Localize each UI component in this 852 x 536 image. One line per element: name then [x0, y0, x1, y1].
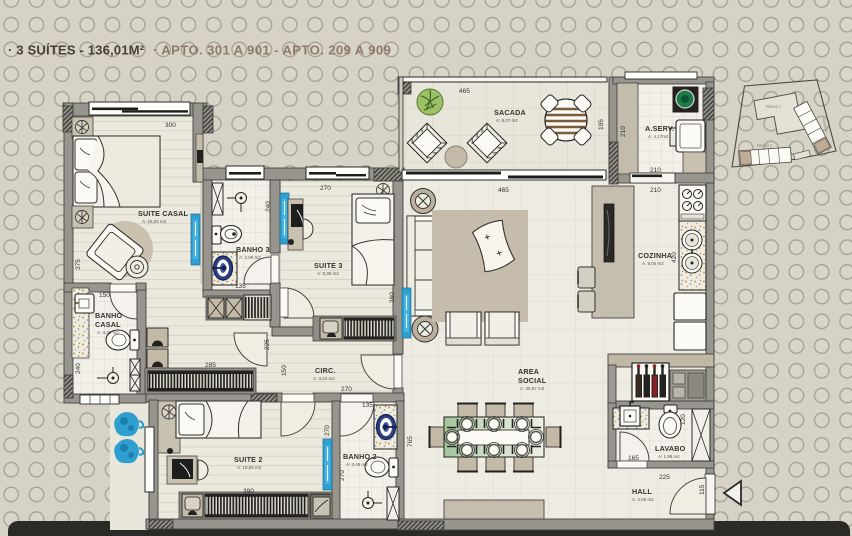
svg-text:SACADA: SACADA	[494, 108, 526, 117]
svg-text:HALL: HALL	[632, 487, 652, 496]
svg-text:PREDIO 3: PREDIO 3	[766, 105, 781, 109]
svg-text:270: 270	[339, 470, 346, 481]
svg-text:135: 135	[235, 283, 246, 290]
svg-text:A: 8,07 m2: A: 8,07 m2	[496, 118, 518, 123]
svg-text:SOCIAL: SOCIAL	[518, 376, 547, 385]
svg-text:BANHO 3: BANHO 3	[236, 245, 270, 254]
svg-text:225: 225	[659, 474, 670, 481]
svg-text:A: 9,05 m2: A: 9,05 m2	[642, 261, 664, 266]
svg-text:210: 210	[650, 167, 661, 174]
svg-text:AREA: AREA	[518, 367, 539, 376]
svg-text:465: 465	[498, 187, 509, 194]
svg-text:150: 150	[99, 292, 110, 299]
svg-text:A: 4,17m2: A: 4,17m2	[648, 134, 669, 139]
svg-text:240: 240	[75, 363, 82, 374]
svg-text:285: 285	[205, 362, 216, 369]
svg-text:A.SERV.: A.SERV.	[645, 124, 674, 133]
svg-text:SUITE 3: SUITE 3	[314, 261, 343, 270]
svg-text:A: 3,36 m2: A: 3,36 m2	[97, 330, 119, 335]
svg-text:115: 115	[699, 484, 706, 495]
svg-text:465: 465	[459, 88, 470, 95]
svg-text:BANHO: BANHO	[95, 311, 123, 320]
svg-text:150: 150	[281, 365, 288, 376]
svg-text:A: 3,00 m2: A: 3,00 m2	[239, 255, 261, 260]
svg-text:390: 390	[243, 488, 254, 495]
svg-text:A: 10,50 m2: A: 10,50 m2	[237, 465, 262, 470]
svg-text:· APTO. 301 A 901 - APTO. 209: · APTO. 301 A 901 - APTO. 209 A 909	[153, 43, 391, 58]
svg-text:BANHO 2: BANHO 2	[343, 452, 377, 461]
svg-text:SUITE 2: SUITE 2	[234, 455, 263, 464]
svg-text:CIRC.: CIRC.	[315, 366, 336, 375]
svg-text:A: 9,35 m2: A: 9,35 m2	[317, 271, 339, 276]
svg-text:210: 210	[620, 126, 627, 137]
svg-text:165: 165	[628, 455, 639, 462]
svg-text:240: 240	[265, 201, 272, 212]
svg-text:CASAL: CASAL	[95, 320, 121, 329]
svg-text:270: 270	[320, 185, 331, 192]
svg-text:210: 210	[650, 187, 661, 194]
svg-text:SUITE CASAL: SUITE CASAL	[138, 209, 189, 218]
svg-text:A: 2,59 m2: A: 2,59 m2	[632, 497, 654, 502]
svg-text:· 3 SUÍTES - 136,01M²: · 3 SUÍTES - 136,01M²	[8, 43, 145, 58]
svg-text:LAVABO: LAVABO	[655, 444, 686, 453]
svg-text:765: 765	[407, 436, 414, 447]
svg-text:135: 135	[362, 402, 373, 409]
svg-text:A: 3,45 m2: A: 3,45 m2	[346, 462, 368, 467]
svg-text:A: 1,98 m2: A: 1,98 m2	[658, 454, 680, 459]
svg-text:120: 120	[680, 414, 687, 425]
svg-text:COZINHA: COZINHA	[638, 251, 672, 260]
svg-text:420: 420	[671, 252, 678, 263]
svg-text:195: 195	[598, 119, 605, 130]
svg-text:225: 225	[264, 339, 271, 350]
svg-text:A: 16,02 m2: A: 16,02 m2	[142, 219, 167, 224]
svg-text:300: 300	[165, 122, 176, 129]
svg-text:A: 3,24 m2: A: 3,24 m2	[313, 376, 335, 381]
svg-text:360: 360	[389, 292, 396, 303]
svg-text:PREDIO 2: PREDIO 2	[757, 144, 772, 148]
svg-text:270: 270	[341, 386, 352, 393]
svg-text:375: 375	[75, 259, 82, 270]
svg-text:A: 35,57 m2: A: 35,57 m2	[520, 386, 545, 391]
svg-text:270: 270	[324, 425, 331, 436]
